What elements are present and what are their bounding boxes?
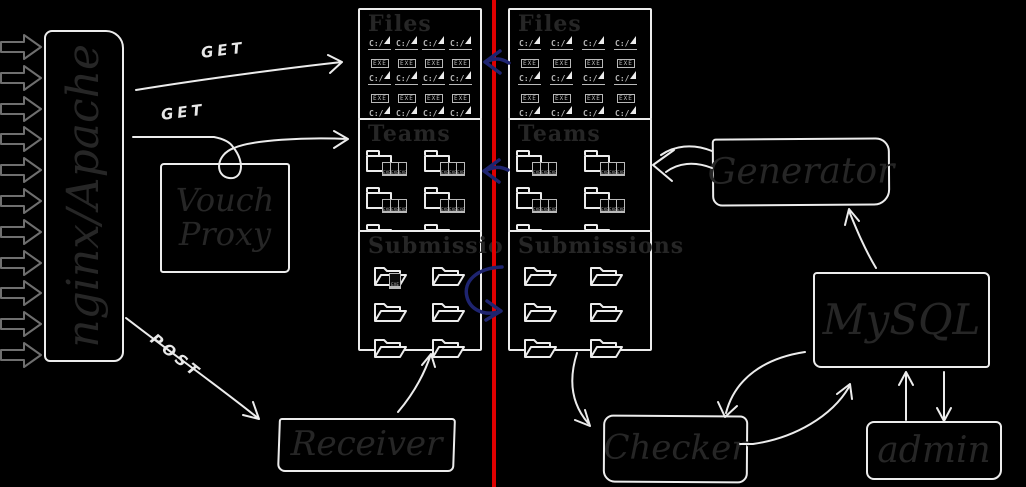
page-corner-icon [534, 106, 540, 114]
submission-folders-grid: EXE EXE EXE EXE EXE EXE [510, 258, 650, 369]
submission-folder: EXE [522, 298, 564, 329]
architecture-diagram: nginx/Apache Vouch Proxy Files C:/ EXE C… [0, 0, 1026, 487]
incoming-request-arrow [0, 188, 42, 214]
exe-cmd-text: C:/ [583, 109, 597, 118]
exe-cmd-text: C:/ [369, 39, 383, 48]
exe-file-icon: C:/ EXE [422, 38, 445, 69]
files-title: Files [360, 10, 480, 36]
mini-exe-icon: EXE [616, 199, 625, 213]
page-corner-icon [438, 106, 444, 114]
node-admin: admin [866, 421, 1002, 480]
exe-badge: EXE [553, 94, 571, 103]
incoming-request-arrow [0, 157, 42, 183]
checker-label: Checker [603, 431, 747, 468]
exe-file-icon: C:/ EXE [518, 73, 541, 104]
submission-folder: EXE [588, 334, 630, 365]
page-corner-icon [566, 71, 572, 79]
get-files-label: GET [200, 39, 247, 62]
mini-exe-icon: EXE [616, 162, 625, 176]
sync-files-arrow [485, 51, 509, 73]
page-corner-icon [465, 36, 471, 44]
exe-cmd-text: C:/ [551, 109, 565, 118]
exe-cmd-text: C:/ [583, 74, 597, 83]
exe-cmd-text: C:/ [519, 39, 533, 48]
exe-badge: EXE [617, 94, 635, 103]
incoming-request-arrow [0, 126, 42, 152]
teams-title: Teams [510, 120, 650, 146]
page-corner-icon [465, 106, 471, 114]
page-corner-icon [384, 71, 390, 79]
page-corner-icon [598, 106, 604, 114]
open-folder-icon [522, 298, 558, 325]
mini-exe-icon: EXE [456, 199, 465, 213]
submissions-title: Submissio [360, 232, 480, 258]
exe-cmd-text: C:/ [615, 39, 629, 48]
exe-cmd-text: C:/ [369, 74, 383, 83]
page-corner-icon [534, 36, 540, 44]
submission-folders-grid: EXE EXE EXE EXE EXE EXE [360, 258, 480, 369]
page-corner-icon [438, 36, 444, 44]
open-folder-icon [430, 298, 466, 325]
page-corner-icon [438, 71, 444, 79]
team-folder-group: EXE EXE EXE [424, 185, 474, 218]
exe-file-icon: C:/ EXE [518, 38, 541, 69]
node-mysql: MySQL [813, 272, 990, 368]
exe-badge: EXE [617, 59, 635, 68]
page-corner-icon [534, 71, 540, 79]
receiver-label: Receiver [290, 427, 443, 463]
trust-boundary-line [492, 0, 496, 487]
team-folder-group: EXE EXE EXE [584, 185, 634, 218]
exe-cmd-text: C:/ [423, 109, 437, 118]
exe-badge: EXE [371, 59, 389, 68]
exe-file-icon: C:/ EXE [582, 38, 605, 69]
team-folder-group: EXE EXE EXE [424, 148, 474, 181]
admin-to-mysql-arrow [899, 372, 913, 420]
team-folder-group: EXE EXE EXE [584, 148, 634, 181]
mini-exe-files: EXE EXE EXE [533, 199, 557, 213]
open-folder-icon [372, 334, 408, 361]
mini-exe-icon: EXE [456, 162, 465, 176]
vouch-proxy-label: Vouch Proxy [162, 184, 288, 251]
get-teams-label: GET [160, 101, 207, 124]
generator-to-teams-arrow [653, 146, 712, 181]
open-folder-icon [522, 262, 558, 289]
page-corner-icon [598, 71, 604, 79]
mini-exe-files: EXE EXE EXE [383, 199, 407, 213]
exe-cmd-text: C:/ [519, 74, 533, 83]
exe-file-icon: C:/ EXE [582, 73, 605, 104]
page-corner-icon [384, 36, 390, 44]
exe-cmd-text: C:/ [450, 109, 464, 118]
team-folder-group: EXE EXE EXE [516, 185, 566, 218]
exe-cmd-text: C:/ [551, 39, 565, 48]
incoming-request-arrow [0, 96, 42, 122]
exe-badge: EXE [371, 94, 389, 103]
team-folder-group: EXE EXE EXE [366, 148, 416, 181]
submission-folder: EXE [372, 334, 414, 365]
exe-file-icon: C:/ EXE [395, 73, 418, 104]
exe-badge: EXE [521, 94, 539, 103]
mysql-to-admin-arrow [937, 372, 951, 421]
exe-cmd-text: C:/ [423, 74, 437, 83]
exe-badge: EXE [452, 59, 470, 68]
submission-folder: EXE [372, 298, 414, 329]
page-corner-icon [411, 71, 417, 79]
submission-folder: EXE [522, 262, 564, 293]
exe-cmd-text: C:/ [615, 109, 629, 118]
submission-folder: EXE [588, 262, 630, 293]
exe-badge: EXE [553, 59, 571, 68]
incoming-request-arrow [0, 34, 42, 60]
team-folder-group: EXE EXE EXE [516, 148, 566, 181]
page-corner-icon [630, 71, 636, 79]
exe-badge: EXE [585, 94, 603, 103]
open-folder-icon [430, 334, 466, 361]
page-corner-icon [598, 36, 604, 44]
page-corner-icon [566, 106, 572, 114]
page-corner-icon [465, 71, 471, 79]
submission-folder: EXE [430, 334, 472, 365]
teams-title: Teams [360, 120, 480, 146]
files-title: Files [510, 10, 650, 36]
exe-file-icon: C:/ EXE [614, 73, 637, 104]
mini-exe-icon: EXE [398, 199, 407, 213]
exe-cmd-text: C:/ [369, 109, 383, 118]
open-folder-icon [522, 334, 558, 361]
exe-badge: EXE [452, 94, 470, 103]
node-receiver: Receiver [277, 418, 456, 472]
get-files-arrow [136, 55, 342, 90]
generator-label: Generator [708, 152, 895, 191]
exe-badge: EXE [425, 59, 443, 68]
post-label: POST [147, 330, 206, 382]
exe-file-icon: C:/ EXE [368, 38, 391, 69]
submissions-box-public: Submissio EXE EXE EXE EXE EXE [358, 230, 482, 351]
exe-file-icon: C:/ EXE [422, 73, 445, 104]
mini-exe-icon: EXE [548, 162, 557, 176]
exe-file-icon: C:/ EXE [449, 38, 472, 69]
page-corner-icon [411, 36, 417, 44]
exe-cmd-text: C:/ [396, 109, 410, 118]
exe-cmd-text: C:/ [551, 74, 565, 83]
node-nginx-apache: nginx/Apache [44, 30, 124, 362]
page-corner-icon [384, 106, 390, 114]
page-corner-icon [630, 36, 636, 44]
exe-cmd-text: C:/ [583, 39, 597, 48]
teams-box-internal: Teams EXE EXE EXE EXE EXE EXE EXE EXE EX… [508, 118, 652, 232]
files-box-internal: Files C:/ EXE C:/ EXE C:/ EXE C:/ EXE C:… [508, 8, 652, 120]
incoming-request-arrow [0, 342, 42, 368]
open-folder-icon [372, 298, 408, 325]
submissions-title: Submissions [510, 232, 650, 258]
mini-exe-files: EXE EXE EXE [601, 162, 625, 176]
mini-exe-files: EXE EXE EXE [441, 162, 465, 176]
exe-cmd-text: C:/ [396, 74, 410, 83]
mini-exe-files: EXE EXE EXE [601, 199, 625, 213]
exe-file-icon: C:/ EXE [550, 38, 573, 69]
exe-file-icon: C:/ EXE [614, 38, 637, 69]
incoming-request-arrow [0, 280, 42, 306]
mysql-to-checker-arrow [718, 352, 805, 417]
incoming-request-arrow [0, 65, 42, 91]
submission-folder: EXE [588, 298, 630, 329]
exe-badge: EXE [585, 59, 603, 68]
incoming-traffic-arrows [0, 34, 42, 368]
exe-file-icon: C:/ EXE [368, 73, 391, 104]
mysql-to-generator-arrow [845, 209, 876, 268]
open-folder-icon [430, 262, 466, 289]
open-folder-icon [588, 298, 624, 325]
page-corner-icon [630, 106, 636, 114]
checker-to-mysql-arrow [740, 384, 852, 444]
open-folder-icon [588, 262, 624, 289]
exe-badge: EXE [398, 59, 416, 68]
exe-cmd-text: C:/ [615, 74, 629, 83]
incoming-request-arrow [0, 250, 42, 276]
admin-label: admin [877, 432, 990, 470]
mysql-label: MySQL [823, 298, 981, 342]
exe-file-icon: C:/ EXE [550, 73, 573, 104]
mini-exe-files: EXE EXE EXE [441, 199, 465, 213]
node-checker: Checker [603, 414, 748, 483]
open-folder-icon [588, 334, 624, 361]
exe-cmd-text: C:/ [519, 109, 533, 118]
submission-folder: EXE [430, 298, 472, 329]
page-corner-icon [411, 106, 417, 114]
sync-teams-arrow [484, 160, 508, 182]
node-vouch-proxy: Vouch Proxy [160, 163, 290, 273]
exe-file-icon: C:/ EXE [395, 38, 418, 69]
submission-folder: EXE [372, 262, 414, 293]
mini-exe-icon: EXE [548, 199, 557, 213]
files-box-public: Files C:/ EXE C:/ EXE C:/ EXE C:/ EXE C:… [358, 8, 482, 120]
incoming-request-arrow [0, 311, 42, 337]
exe-badge: EXE [398, 94, 416, 103]
exe-cmd-text: C:/ [450, 39, 464, 48]
nginx-apache-label: nginx/Apache [61, 44, 107, 348]
team-folder-group: EXE EXE EXE [366, 185, 416, 218]
exe-cmd-text: C:/ [450, 74, 464, 83]
exe-badge: EXE [521, 59, 539, 68]
submission-folder: EXE [430, 262, 472, 293]
teams-box-public: Teams EXE EXE EXE EXE EXE EXE EXE EXE EX… [358, 118, 482, 232]
exe-file-icon: C:/ EXE [449, 73, 472, 104]
exe-cmd-text: C:/ [396, 39, 410, 48]
node-generator: Generator [712, 137, 890, 206]
mini-exe-files: EXE EXE EXE [383, 162, 407, 176]
mini-exe-icon: EXE [398, 162, 407, 176]
exe-cmd-text: C:/ [423, 39, 437, 48]
mini-exe-files: EXE EXE EXE [533, 162, 557, 176]
exe-badge: EXE [425, 94, 443, 103]
submissions-box-internal: Submissions EXE EXE EXE EXE EXE [508, 230, 652, 351]
incoming-request-arrow [0, 219, 42, 245]
page-corner-icon [566, 36, 572, 44]
exe-attachment-icon: EXE [389, 273, 401, 289]
submission-folder: EXE [522, 334, 564, 365]
